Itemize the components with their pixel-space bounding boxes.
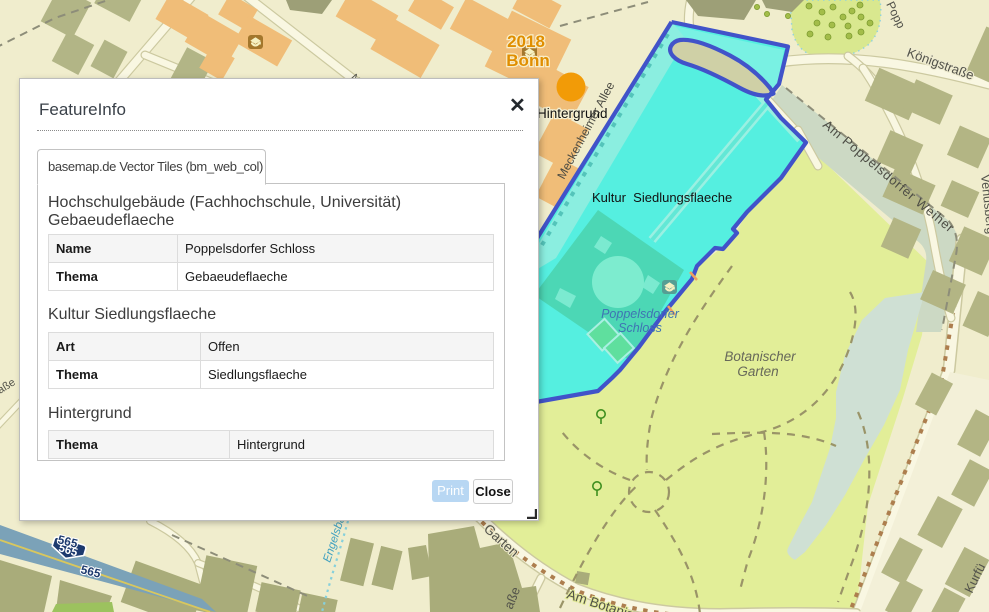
svg-text:Bonn: Bonn <box>506 51 549 70</box>
svg-text:Poppelsdorfer: Poppelsdorfer <box>601 307 680 321</box>
svg-text:2018: 2018 <box>507 32 545 51</box>
svg-text:Garten: Garten <box>737 364 778 379</box>
svg-text:Schloss: Schloss <box>618 321 662 335</box>
svg-text:Botanischer: Botanischer <box>724 349 796 364</box>
svg-text:Kultur Siedlungsflaeche: Kultur Siedlungsflaeche <box>592 190 732 205</box>
